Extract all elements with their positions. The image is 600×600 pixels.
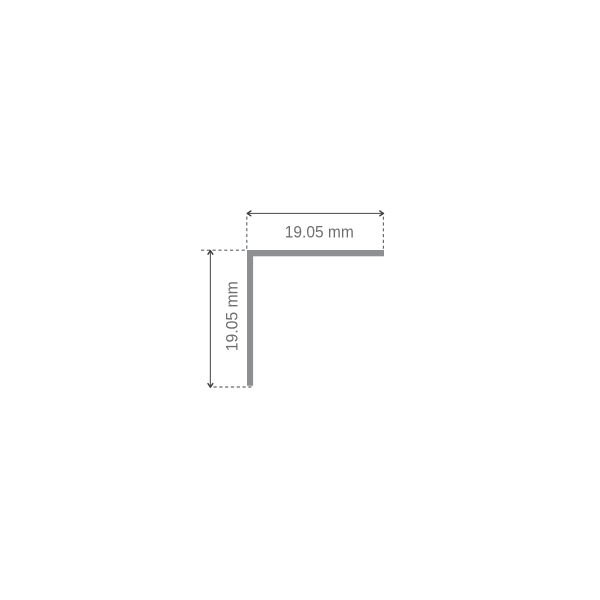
svg-text:19.05 mm: 19.05 mm xyxy=(285,223,354,241)
svg-text:19.05 mm: 19.05 mm xyxy=(223,281,241,351)
